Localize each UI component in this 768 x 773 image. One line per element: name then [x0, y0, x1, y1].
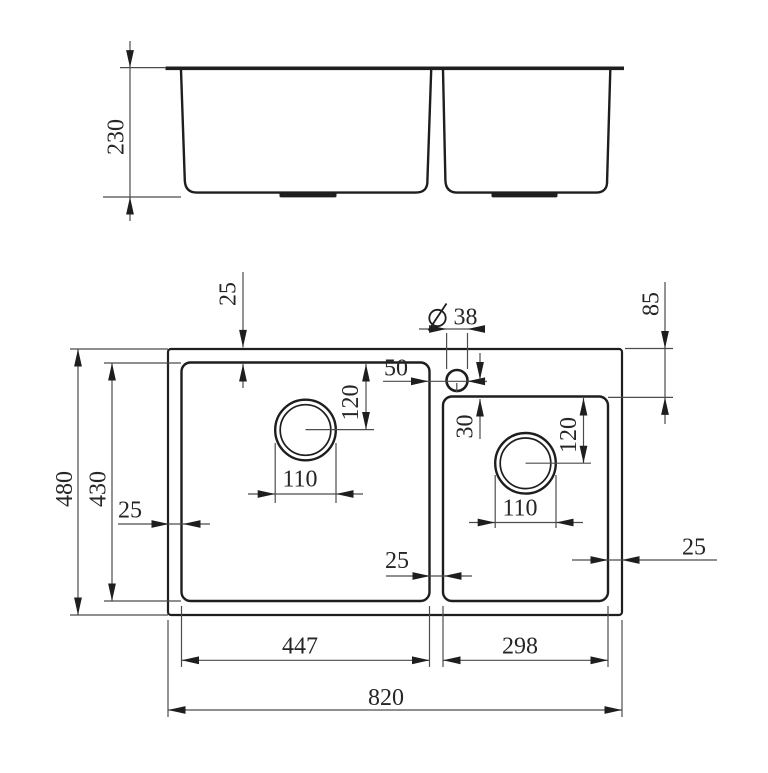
svg-text:110: 110	[282, 467, 317, 493]
svg-text:110: 110	[502, 496, 537, 522]
svg-text:25: 25	[216, 282, 242, 306]
svg-text:120: 120	[556, 417, 582, 453]
svg-text:230: 230	[104, 119, 130, 155]
svg-text:38: 38	[454, 305, 478, 331]
svg-text:120: 120	[338, 385, 364, 421]
svg-text:50: 50	[384, 356, 408, 382]
svg-text:298: 298	[502, 634, 538, 660]
svg-text:430: 430	[86, 471, 112, 507]
svg-text:30: 30	[453, 415, 479, 439]
svg-text:25: 25	[682, 535, 706, 561]
svg-text:85: 85	[639, 292, 665, 316]
svg-text:820: 820	[368, 685, 404, 711]
svg-text:25: 25	[385, 548, 409, 574]
svg-text:25: 25	[118, 498, 142, 524]
svg-text:480: 480	[52, 471, 78, 507]
svg-text:447: 447	[282, 634, 318, 660]
